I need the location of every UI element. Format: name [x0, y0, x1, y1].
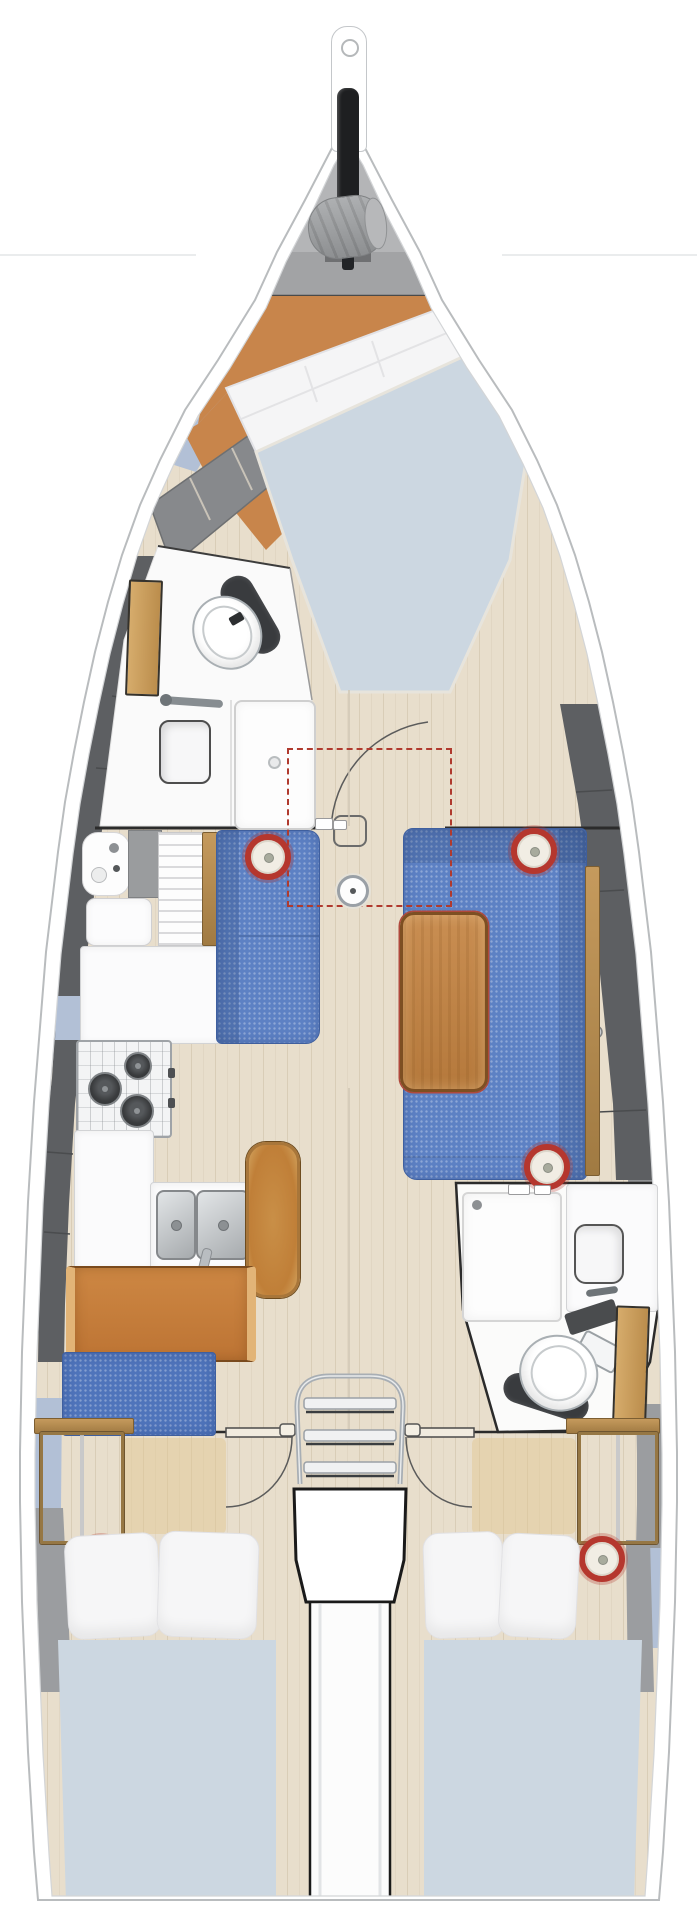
- speaker-port-saloon: [245, 834, 291, 880]
- fridge-lid: [86, 898, 152, 946]
- speaker-aft-starboard-cabin: [579, 1536, 625, 1582]
- table-leaf-outline: [287, 748, 452, 907]
- bow-roller-hole: [341, 39, 359, 57]
- shower-drain: [268, 756, 281, 769]
- forward-head-door: [125, 579, 163, 696]
- speaker-starboard-saloon: [511, 828, 557, 874]
- transom-step-starboard: [392, 1907, 640, 1918]
- aft-starboard-door-floor: [472, 1438, 576, 1534]
- galley-sink-small: [156, 1190, 196, 1260]
- galley-utility-sink: [82, 832, 130, 896]
- engine-box: [294, 1489, 406, 1602]
- aft-port-clothes-locker: [40, 1432, 124, 1544]
- nav-desk: [66, 1266, 256, 1362]
- aft-port-pillow-2: [156, 1530, 260, 1639]
- starboard-sofa-wood-trim: [585, 866, 600, 1176]
- aft-head-sink: [574, 1224, 624, 1284]
- forward-head-faucet-knob: [160, 694, 172, 706]
- aft-starboard-pillow-1: [422, 1531, 506, 1640]
- port-window-band-galley: [55, 996, 83, 1040]
- aft-shower: [462, 1192, 562, 1322]
- galley-aft-counter: [74, 1130, 154, 1270]
- aft-head-door: [612, 1305, 650, 1432]
- galley-gray-counter: [128, 830, 162, 898]
- aft-port-door-floor: [122, 1438, 226, 1534]
- aft-starboard-pillow-2: [497, 1532, 580, 1640]
- aft-starboard-mattress: [424, 1640, 642, 1902]
- aft-head-sill: [508, 1184, 530, 1195]
- aft-starboard-clothes-locker: [578, 1432, 658, 1544]
- aft-port-pillow-1: [63, 1532, 162, 1641]
- mast-post: [337, 875, 369, 907]
- transom-locker: [316, 1911, 384, 1920]
- aft-head-sill-2: [534, 1185, 551, 1195]
- speaker-starboard-aft-saloon: [524, 1144, 570, 1190]
- galley-slatted-locker: [158, 832, 204, 946]
- galley-stove: [76, 1040, 172, 1138]
- galley-worktop: [80, 946, 222, 1044]
- aft-shower-head: [472, 1200, 482, 1210]
- saloon-table: [400, 912, 488, 1092]
- engine-tunnel: [310, 1602, 390, 1908]
- transom-step-port: [58, 1907, 308, 1918]
- aft-port-mattress: [58, 1640, 276, 1902]
- forward-head-sink: [159, 720, 211, 784]
- yacht-floorplan: [0, 0, 697, 1920]
